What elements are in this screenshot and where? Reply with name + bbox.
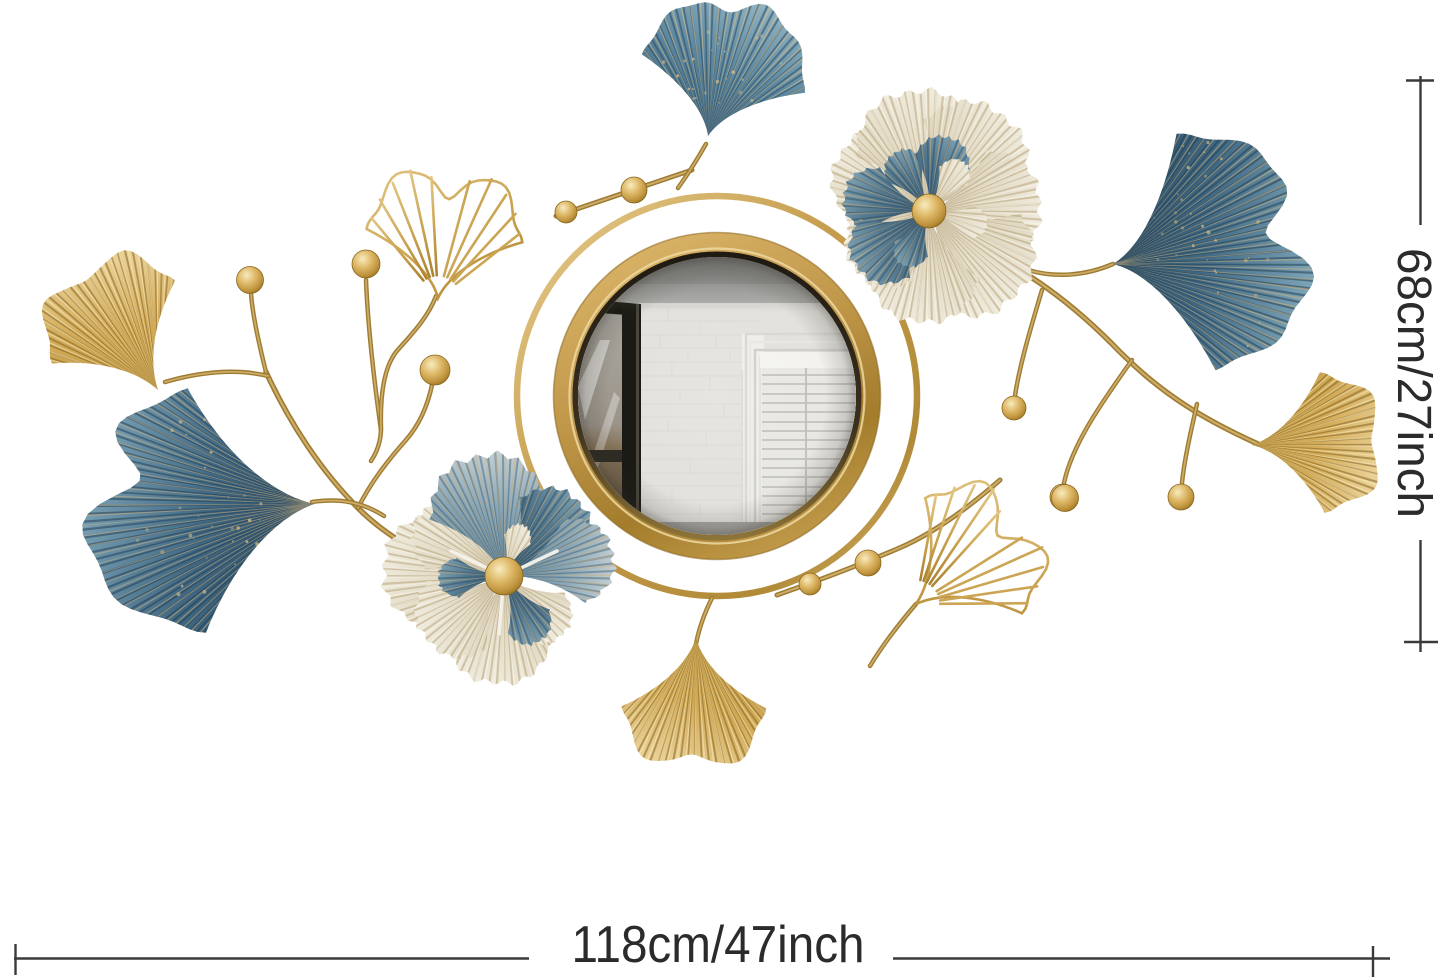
svg-text:118cm/47inch: 118cm/47inch [572, 916, 865, 974]
svg-text:68cm/27inch: 68cm/27inch [1387, 248, 1439, 518]
